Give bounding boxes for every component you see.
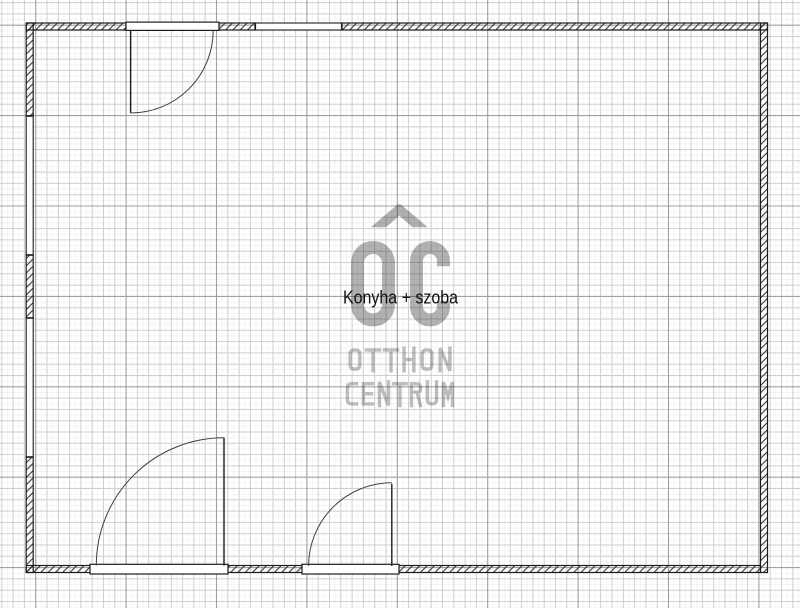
svg-text:Konyha + szoba: Konyha + szoba bbox=[343, 288, 459, 308]
